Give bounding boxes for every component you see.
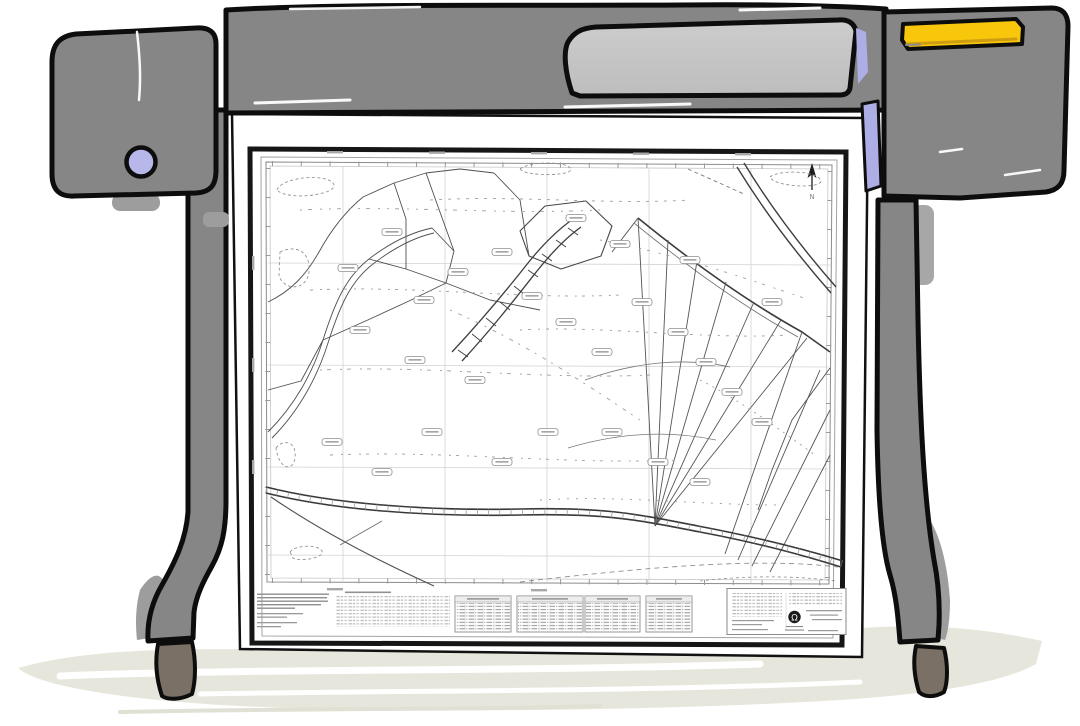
stand-left-leg — [148, 110, 226, 699]
right-caster-wheel — [914, 646, 947, 696]
printed-map-sheet: N — [232, 114, 868, 657]
north-label: N — [809, 193, 814, 201]
paper-guide-accent — [862, 101, 881, 191]
control-panel-display — [902, 19, 1023, 49]
stand-right-leg — [877, 200, 947, 696]
legend-coordinate-list — [336, 592, 450, 628]
plotter-scene: N — [0, 0, 1080, 726]
printer-window — [565, 20, 856, 96]
power-knob-button — [127, 148, 156, 177]
logo-glyph: Ω — [791, 614, 798, 624]
legend-table — [646, 596, 692, 632]
scene-illustration: N — [0, 0, 1080, 726]
legend-table — [455, 596, 511, 632]
legend-title-block: Ω — [727, 589, 846, 635]
legend-table — [517, 596, 583, 632]
left-caster-wheel — [156, 642, 195, 699]
legend-table — [585, 596, 640, 632]
